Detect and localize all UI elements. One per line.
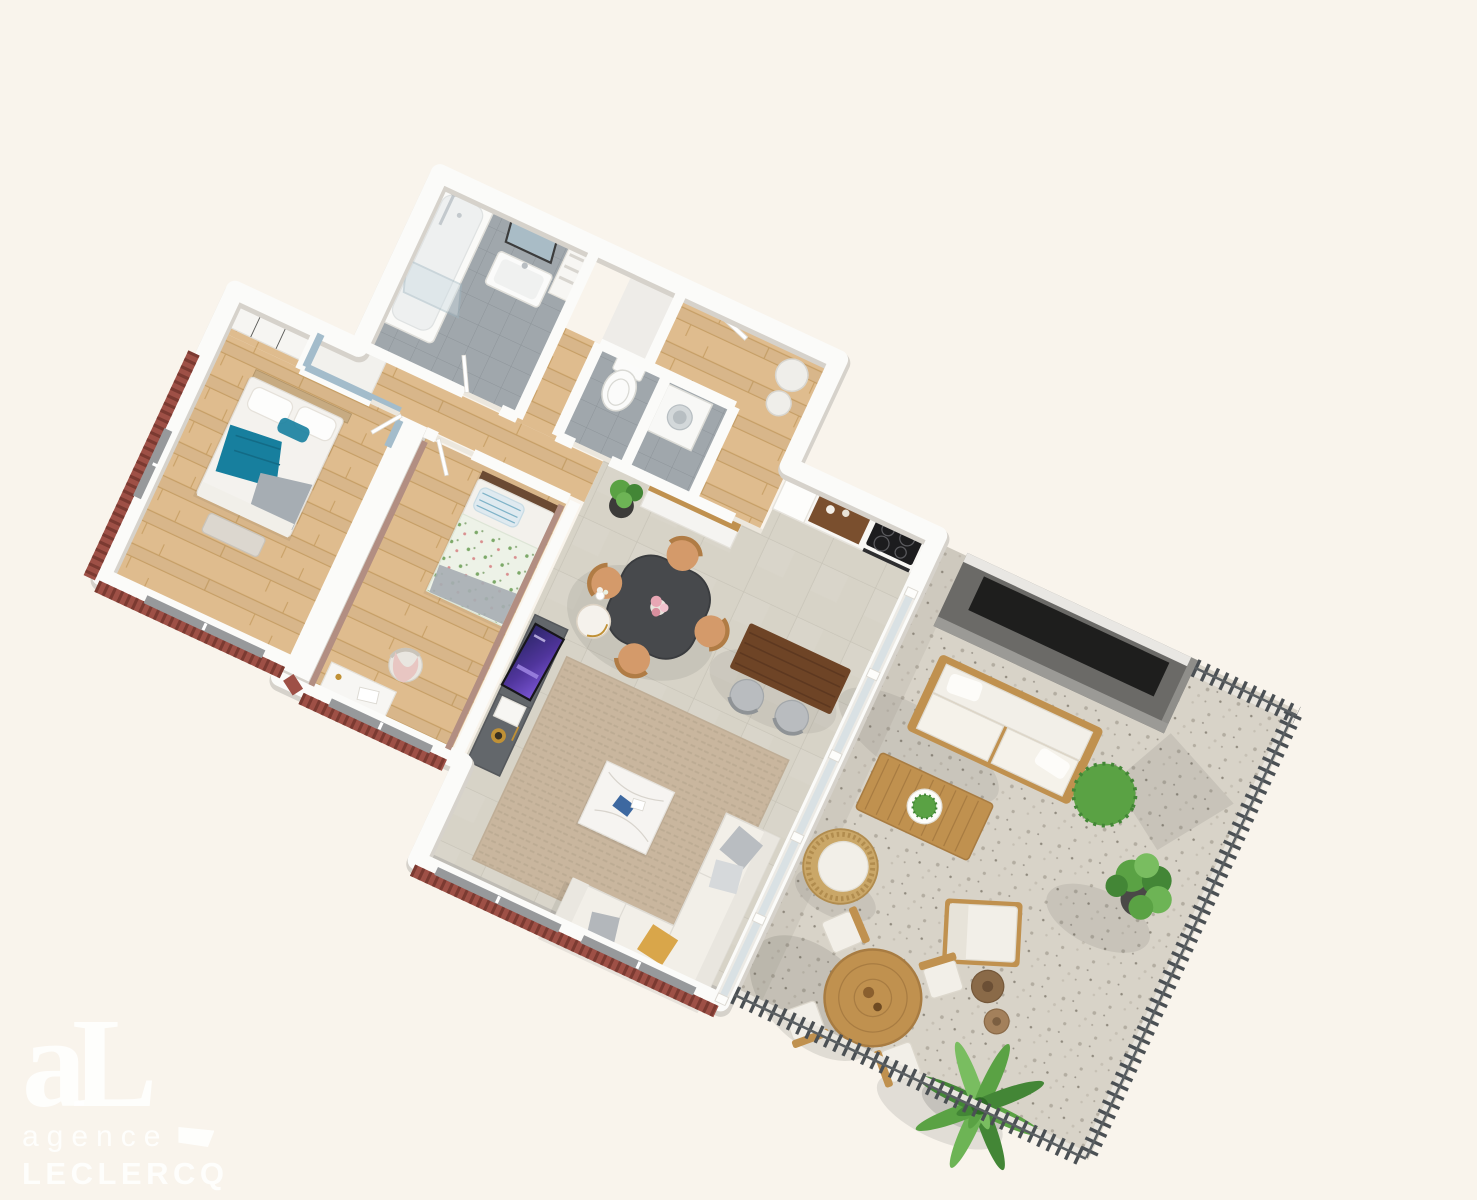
agency-name-line1: agence: [22, 1120, 229, 1154]
agency-monogram: aL: [22, 1012, 229, 1114]
agency-name-line2: LECLERCQ: [22, 1156, 229, 1192]
flag-icon: [178, 1127, 214, 1147]
floor-plan-scene: aL agence LECLERCQ: [0, 0, 1477, 1200]
agency-watermark: aL agence LECLERCQ: [22, 1012, 229, 1192]
agency-name-text: agence: [22, 1120, 168, 1154]
headrest: [947, 904, 968, 960]
